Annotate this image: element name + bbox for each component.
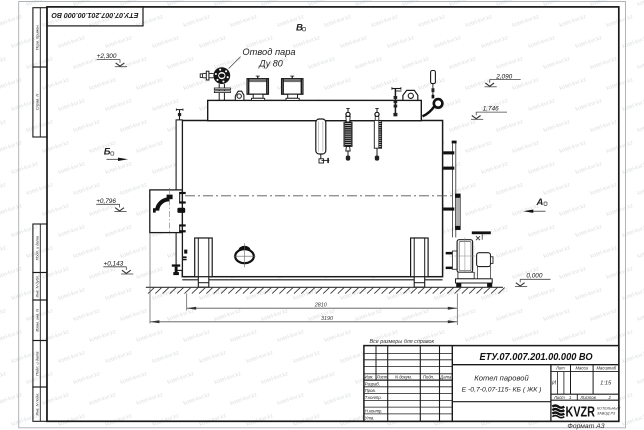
svg-text:N докум.: N докум. bbox=[395, 375, 412, 380]
svg-text:Справ. N: Справ. N bbox=[35, 94, 40, 110]
svg-text:Подп. и дата: Подп. и дата bbox=[35, 235, 40, 260]
svg-text:Листов: Листов bbox=[580, 395, 597, 400]
svg-text:Разраб.: Разраб. bbox=[365, 382, 380, 387]
svg-text:Подп. и дата: Подп. и дата bbox=[35, 351, 40, 376]
svg-text:Лист: Лист bbox=[553, 395, 565, 400]
svg-text:И: И bbox=[552, 380, 556, 386]
svg-text:Дата: Дата bbox=[439, 375, 452, 380]
svg-text:Лит: Лит bbox=[555, 366, 565, 371]
svg-text:Т.контр.: Т.контр. bbox=[365, 395, 382, 400]
svg-text:0,000: 0,000 bbox=[526, 272, 542, 279]
svg-text:Утв.: Утв. bbox=[365, 415, 375, 420]
svg-text:ЕТУ.07.007.201.00.000 ВО: ЕТУ.07.007.201.00.000 ВО bbox=[480, 352, 593, 363]
svg-text:ЗАВОД РЗ: ЗАВОД РЗ bbox=[597, 412, 616, 416]
svg-text:Инв. N подл.: Инв. N подл. bbox=[35, 393, 40, 416]
svg-text:Котел паровой: Котел паровой bbox=[474, 374, 529, 383]
svg-text:Отвод пара: Отвод пара bbox=[242, 47, 295, 57]
svg-text:Лист: Лист bbox=[376, 375, 388, 380]
svg-text:А: А bbox=[536, 197, 544, 208]
svg-text:Н.контр.: Н.контр. bbox=[365, 409, 383, 414]
svg-text:ЕТУ.07.007.201.00.000 ВО: ЕТУ.07.007.201.00.000 ВО bbox=[51, 11, 138, 20]
svg-text:Инв. N дубл.: Инв. N дубл. bbox=[35, 275, 40, 298]
svg-text:Взам. инв. N: Взам. инв. N bbox=[35, 309, 40, 332]
svg-text:Все размеры для справок: Все размеры для справок bbox=[370, 339, 435, 345]
svg-text:KVZR: KVZR bbox=[566, 405, 596, 421]
svg-text:Формат А3: Формат А3 bbox=[567, 423, 604, 430]
svg-text:Б: Б bbox=[104, 147, 111, 158]
svg-text:3190: 3190 bbox=[321, 316, 333, 322]
svg-text:Масса: Масса bbox=[576, 366, 589, 371]
svg-text:Подп.: Подп. bbox=[423, 375, 434, 380]
svg-text:1:15: 1:15 bbox=[600, 381, 612, 387]
svg-text:Изм.: Изм. bbox=[365, 375, 374, 380]
svg-text:2810: 2810 bbox=[314, 302, 327, 308]
svg-text:+2,300: +2,300 bbox=[97, 53, 117, 60]
svg-text:1: 1 bbox=[569, 395, 571, 400]
svg-text:В: В bbox=[296, 23, 303, 34]
svg-text:1,746: 1,746 bbox=[483, 105, 499, 112]
svg-text:Е -0,7-0,07-115- КБ ( ЖК ): Е -0,7-0,07-115- КБ ( ЖК ) bbox=[462, 386, 542, 393]
svg-text:КОТЕЛЬНЫЙ: КОТЕЛЬНЫЙ bbox=[597, 407, 621, 411]
svg-text:Масштаб: Масштаб bbox=[597, 366, 617, 371]
svg-text:Перв. примен.: Перв. примен. bbox=[35, 24, 40, 50]
svg-text:Ду 80: Ду 80 bbox=[258, 59, 282, 69]
svg-text:Пров.: Пров. bbox=[365, 388, 376, 393]
